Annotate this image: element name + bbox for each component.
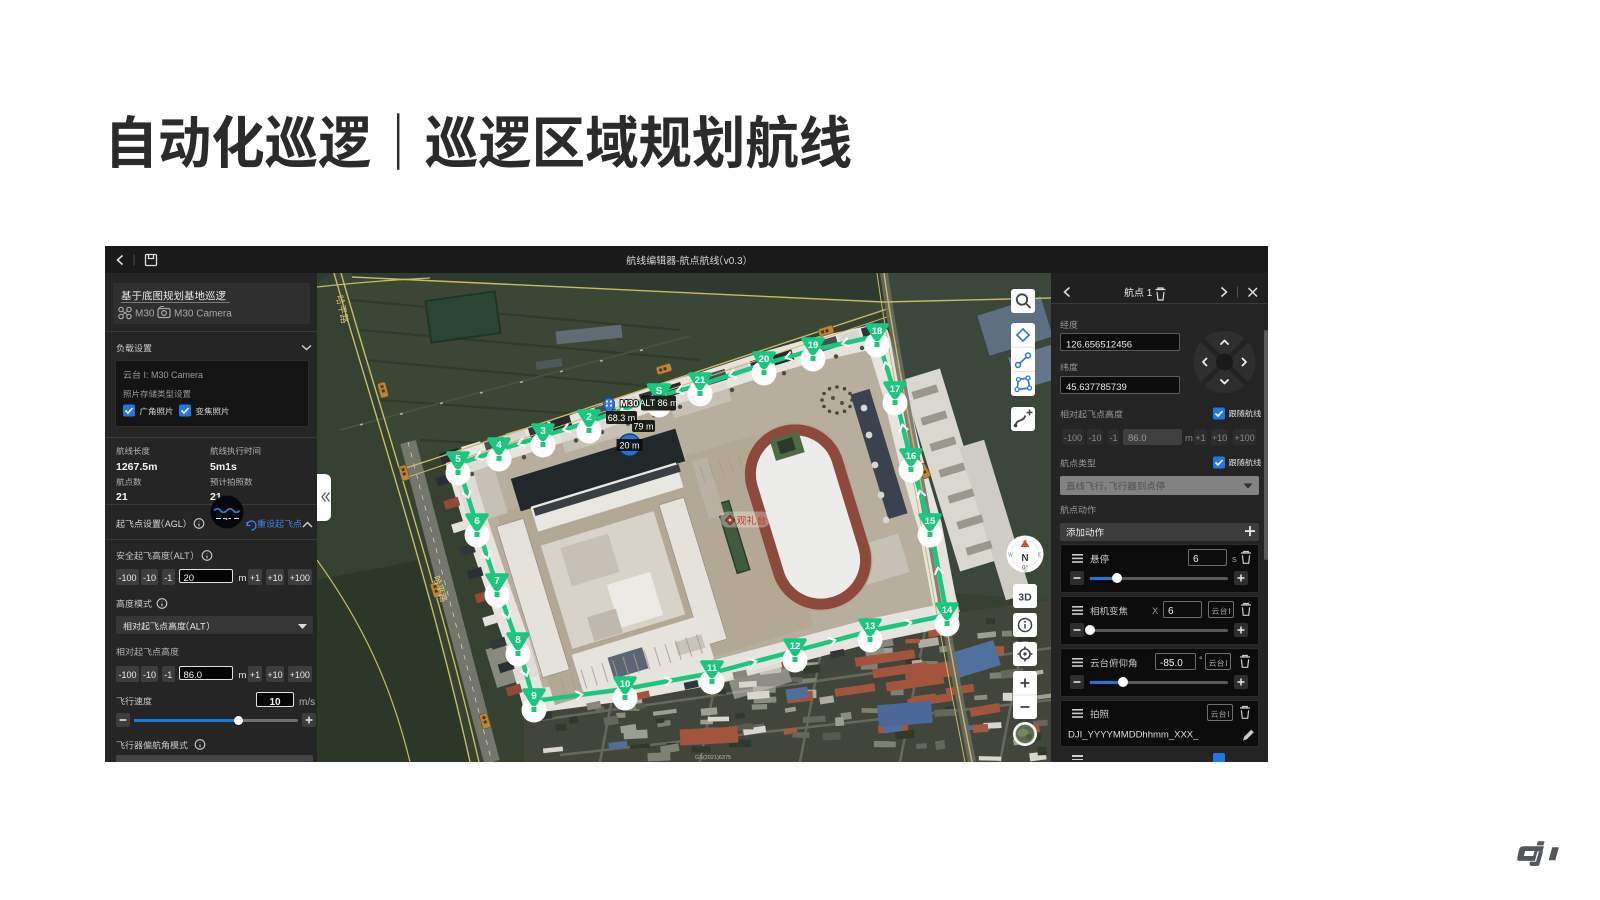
svg-text:17: 17 (890, 384, 901, 395)
svg-text:15: 15 (925, 516, 936, 527)
svg-text:20: 20 (759, 354, 770, 365)
svg-text:8: 8 (515, 635, 521, 646)
svg-text:21: 21 (695, 375, 706, 386)
svg-text:GS(2021)6375: GS(2021)6375 (695, 755, 731, 761)
svg-text:3D: 3D (1018, 592, 1032, 604)
svg-text:5: 5 (455, 454, 461, 465)
svg-text:7: 7 (494, 576, 500, 587)
svg-text:9: 9 (531, 691, 537, 702)
svg-text:79 m: 79 m (633, 421, 653, 431)
svg-text:4: 4 (496, 440, 502, 451)
svg-text:10: 10 (620, 679, 631, 690)
svg-text:6: 6 (474, 516, 480, 527)
svg-text:2: 2 (586, 412, 592, 423)
svg-text:12: 12 (790, 641, 801, 652)
svg-text:20 m: 20 m (619, 440, 639, 450)
svg-text:11: 11 (707, 663, 718, 674)
svg-text:N: N (1021, 553, 1028, 564)
svg-text:W: W (1008, 553, 1013, 559)
svg-text:13: 13 (865, 621, 876, 632)
svg-text:ALT 86 m: ALT 86 m (639, 398, 677, 408)
svg-text:19: 19 (808, 340, 819, 351)
svg-text:3: 3 (540, 426, 546, 437)
svg-text:14: 14 (942, 605, 953, 616)
svg-text:S: S (656, 386, 663, 397)
svg-text:16: 16 (906, 451, 917, 462)
svg-text:N: N (1023, 541, 1027, 547)
svg-text:M30: M30 (620, 399, 638, 410)
svg-text:68.3 m: 68.3 m (608, 413, 636, 423)
svg-text:18: 18 (872, 326, 883, 337)
